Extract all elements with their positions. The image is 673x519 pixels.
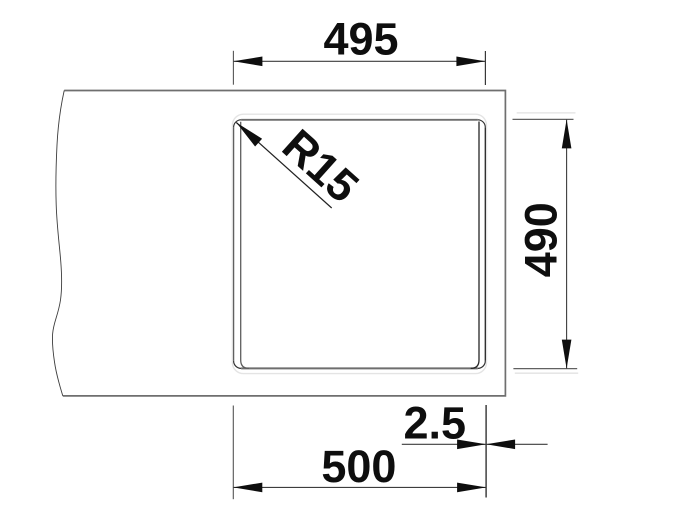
svg-text:500: 500	[321, 441, 396, 492]
svg-text:495: 495	[323, 14, 398, 65]
svg-text:2.5: 2.5	[404, 398, 467, 449]
svg-text:R15: R15	[273, 119, 369, 212]
svg-text:490: 490	[516, 202, 567, 277]
